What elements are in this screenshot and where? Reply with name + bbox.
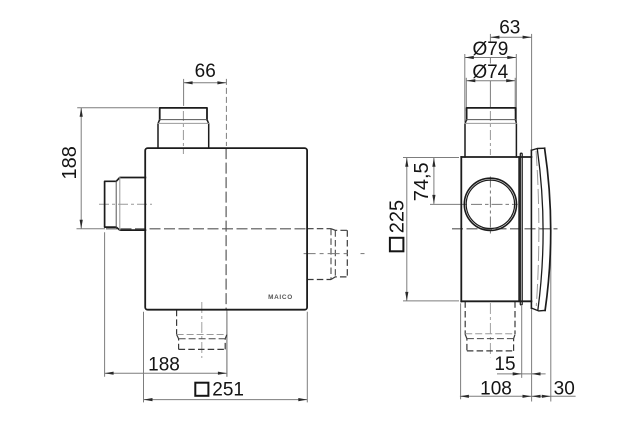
svg-text:251: 251 bbox=[212, 380, 244, 401]
svg-text:63: 63 bbox=[499, 18, 520, 39]
svg-text:66: 66 bbox=[195, 61, 216, 82]
svg-text:Ø74: Ø74 bbox=[472, 62, 508, 83]
svg-text:MAICO: MAICO bbox=[268, 294, 293, 301]
svg-text:74,5: 74,5 bbox=[411, 162, 433, 201]
svg-text:30: 30 bbox=[554, 379, 575, 400]
svg-text:188: 188 bbox=[148, 355, 180, 376]
svg-text:Ø79: Ø79 bbox=[472, 39, 508, 60]
svg-text:15: 15 bbox=[494, 354, 515, 375]
svg-text:108: 108 bbox=[480, 379, 512, 400]
svg-text:188: 188 bbox=[59, 146, 81, 179]
svg-text:225: 225 bbox=[386, 200, 408, 233]
